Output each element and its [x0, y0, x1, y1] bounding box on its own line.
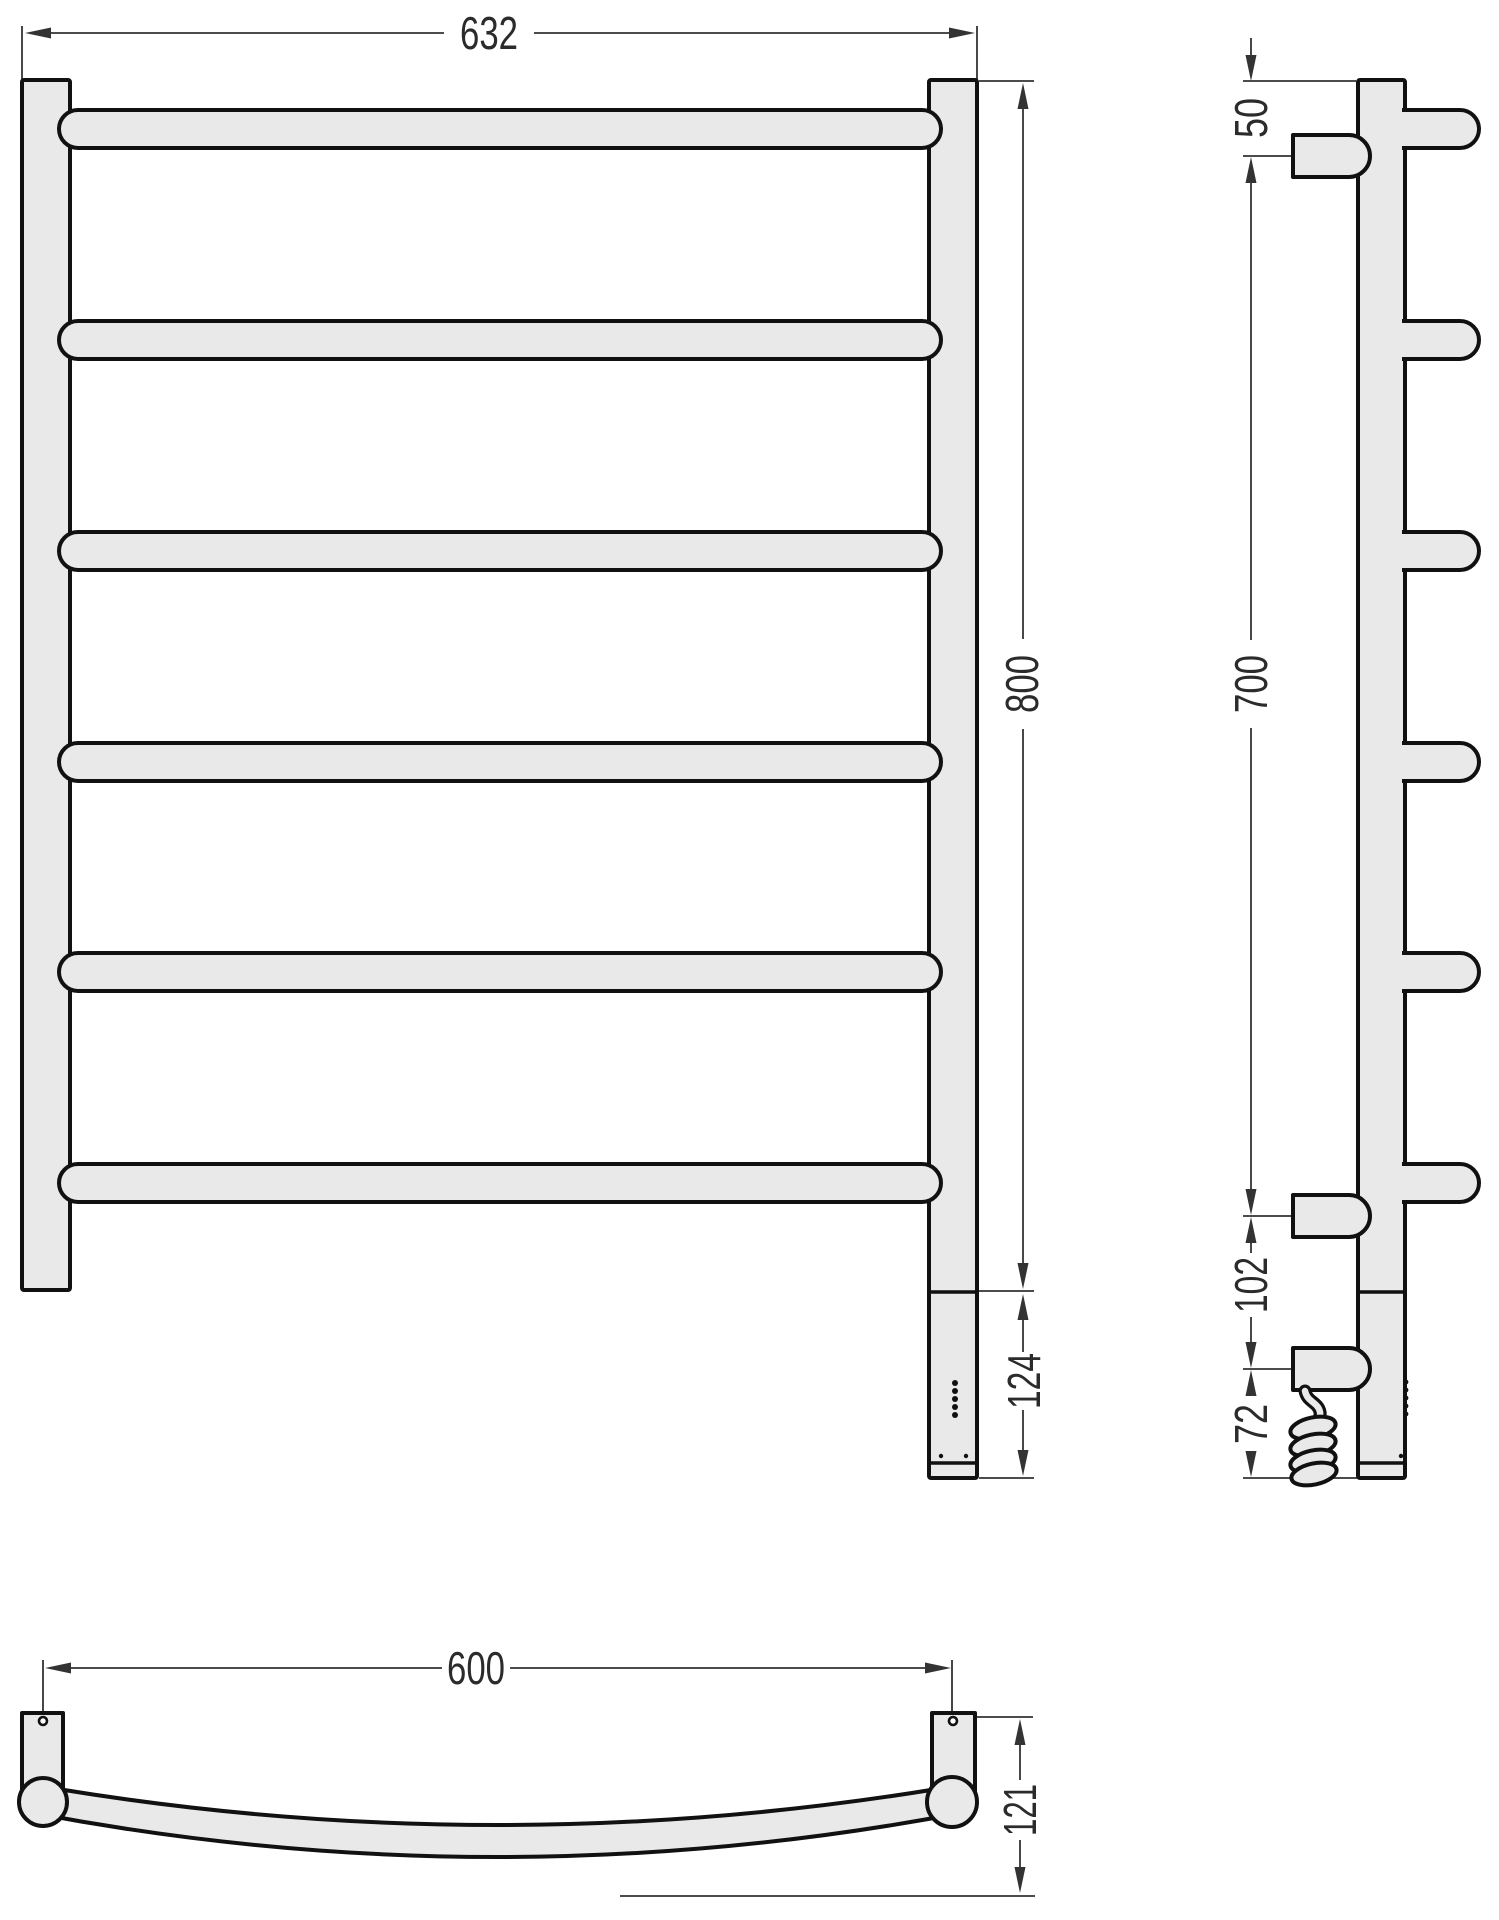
dim-label-50: 50 — [1225, 98, 1277, 138]
led-dot — [952, 1388, 958, 1394]
bar-end-stub — [1402, 110, 1479, 148]
dim-label-102: 102 — [1225, 1257, 1277, 1313]
led-dot — [952, 1396, 958, 1402]
dim-arrow — [1246, 1217, 1257, 1243]
dimension-top-offset: 50 — [1225, 38, 1277, 183]
dim-arrow — [1246, 1370, 1257, 1396]
left-rail-section — [19, 1778, 67, 1826]
dim-arrow — [1246, 1189, 1257, 1215]
side-view — [1288, 80, 1479, 1489]
front-view — [22, 80, 977, 1478]
dim-arrow — [1246, 157, 1257, 183]
towel-bar — [59, 110, 941, 148]
led-dot — [952, 1412, 958, 1418]
towel-bar — [59, 532, 941, 570]
bar-end-stub — [1402, 1164, 1479, 1202]
right-screw-hole — [949, 1717, 957, 1725]
side-rail — [1358, 80, 1405, 1478]
dimension-front-width: 632 — [22, 7, 977, 79]
power-unit — [1293, 1348, 1370, 1390]
right-rail-section — [927, 1777, 977, 1827]
dim-arrow — [1015, 1867, 1026, 1893]
dim-arrow — [1018, 1450, 1029, 1476]
dim-label-72: 72 — [1225, 1404, 1277, 1444]
dim-arrow — [1015, 1719, 1026, 1745]
dim-label-632: 632 — [460, 7, 518, 59]
dim-arrow — [1246, 55, 1257, 81]
led-edge-dot — [1404, 1404, 1409, 1409]
dim-arrow — [949, 28, 975, 39]
dim-label-800: 800 — [996, 655, 1048, 713]
right-rail — [929, 80, 977, 1478]
led-dot — [952, 1404, 958, 1410]
dim-arrow — [1018, 1263, 1029, 1289]
led-edge-dot — [1404, 1380, 1409, 1385]
led-edge-dot — [1404, 1396, 1409, 1401]
dim-arrow — [1246, 1342, 1257, 1368]
bar-end-stub — [1402, 321, 1479, 359]
power-cable-coil — [1288, 1391, 1338, 1489]
dimension-cable-offset: 72 — [1225, 1370, 1277, 1477]
led-edge-dot — [1404, 1412, 1409, 1417]
dimension-mount-spacing: 600 — [43, 1642, 952, 1712]
dim-arrow — [25, 28, 51, 39]
dim-label-600: 600 — [447, 1642, 505, 1694]
screw-dot — [964, 1454, 968, 1458]
dimension-heater-section: 124 — [979, 1294, 1050, 1478]
screw-dot — [939, 1454, 943, 1458]
technical-drawing: 632 800 124 — [0, 0, 1499, 1920]
dim-arrow — [45, 1663, 71, 1674]
bar-end-stub — [1402, 953, 1479, 991]
screw-dot — [1399, 1454, 1403, 1458]
led-edge-dot — [1404, 1388, 1409, 1393]
towel-bar — [59, 321, 941, 359]
dim-label-121: 121 — [994, 1784, 1046, 1836]
left-screw-hole — [39, 1717, 47, 1725]
left-rail — [22, 80, 70, 1290]
towel-bar — [59, 743, 941, 781]
mount-bracket-top — [1293, 135, 1370, 177]
led-dot — [952, 1380, 958, 1386]
bottom-view — [19, 1713, 977, 1857]
curved-bar — [34, 1789, 961, 1857]
bar-end-stub — [1402, 532, 1479, 570]
dim-arrow — [1018, 1294, 1029, 1320]
dim-label-700: 700 — [1225, 655, 1277, 713]
mount-bracket-bottom — [1293, 1195, 1370, 1237]
bar-end-stub — [1402, 743, 1479, 781]
dimension-front-height: 800 — [979, 81, 1048, 1291]
dim-arrow — [1018, 83, 1029, 109]
towel-bar — [59, 1164, 941, 1202]
dim-label-124: 124 — [998, 1353, 1050, 1409]
dimension-lower-bracket-gap: 102 — [1225, 1217, 1277, 1368]
dim-arrow — [925, 1663, 951, 1674]
towel-bar — [59, 953, 941, 991]
dimension-bracket-span: 700 — [1225, 183, 1277, 1215]
dim-arrow — [1246, 1451, 1257, 1477]
